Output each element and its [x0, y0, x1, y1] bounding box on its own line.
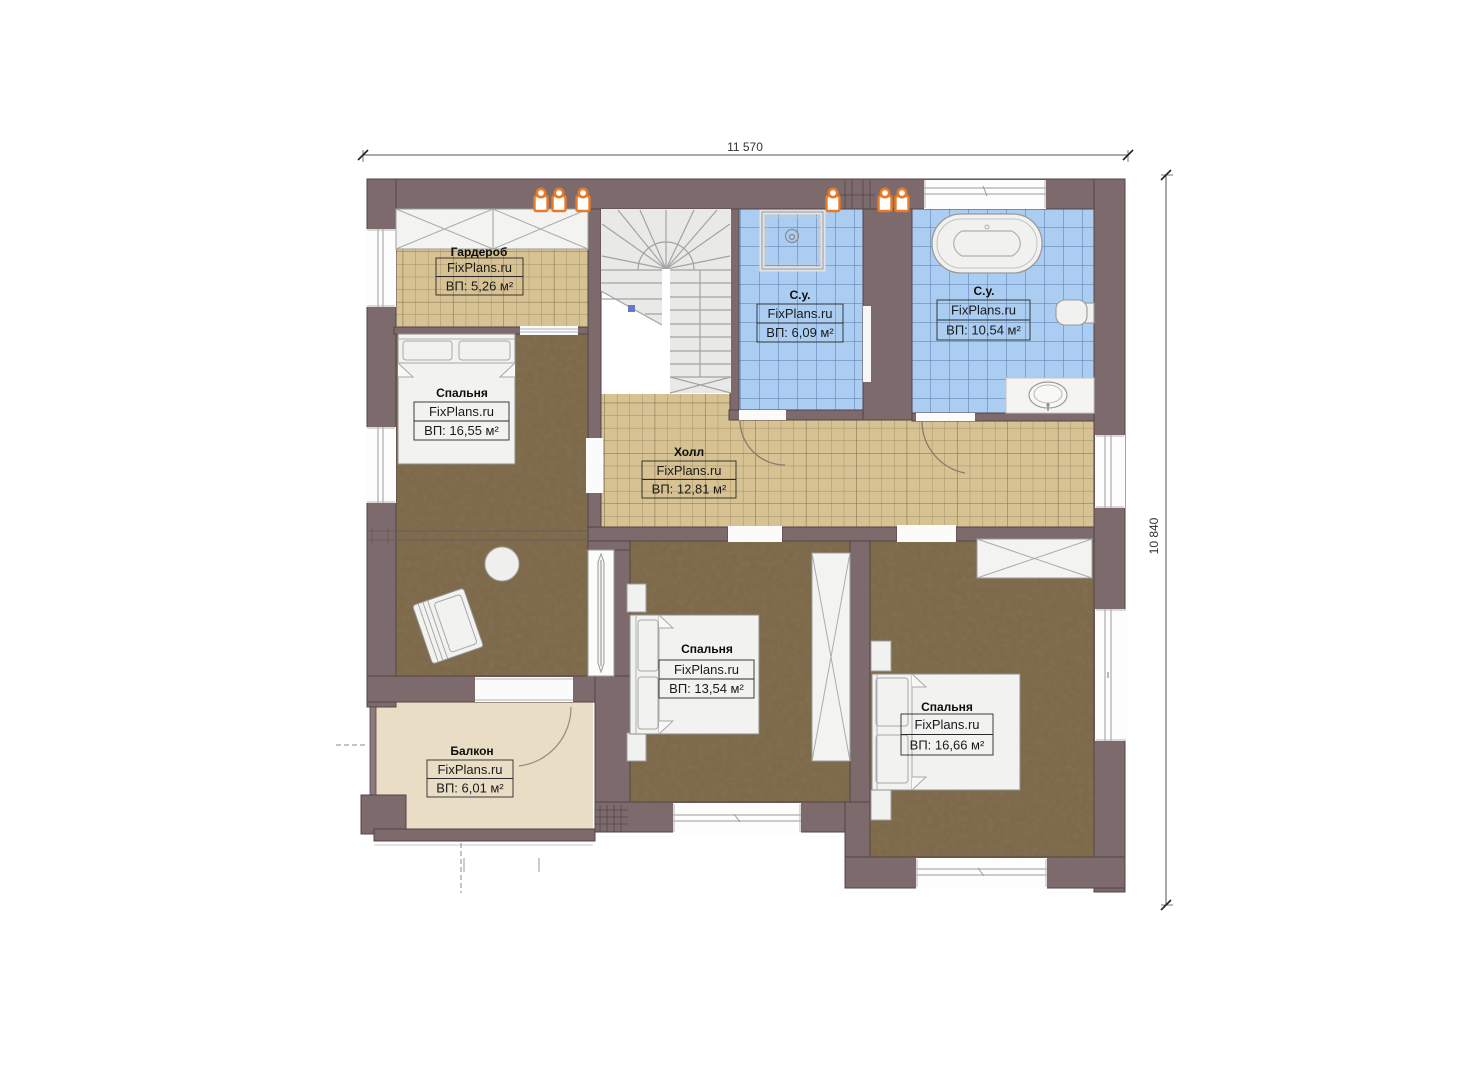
svg-text:ВП: 12,81 м²: ВП: 12,81 м² — [652, 481, 727, 496]
svg-text:Спальня: Спальня — [681, 642, 733, 656]
svg-text:FixPlans.ru: FixPlans.ru — [914, 717, 979, 732]
svg-text:Холл: Холл — [674, 445, 704, 459]
svg-text:11 570: 11 570 — [727, 140, 763, 154]
svg-text:Спальня: Спальня — [436, 386, 488, 400]
svg-text:С.у.: С.у. — [790, 288, 811, 302]
svg-text:Балкон: Балкон — [450, 744, 493, 758]
svg-text:ВП: 16,66 м²: ВП: 16,66 м² — [910, 737, 985, 752]
svg-text:ВП: 16,55 м²: ВП: 16,55 м² — [424, 423, 499, 438]
svg-text:Гардероб: Гардероб — [451, 245, 508, 259]
svg-text:ВП: 6,01 м²: ВП: 6,01 м² — [436, 780, 504, 795]
svg-text:FixPlans.ru: FixPlans.ru — [429, 404, 494, 419]
svg-text:ВП: 10,54 м²: ВП: 10,54 м² — [946, 323, 1021, 338]
svg-text:FixPlans.ru: FixPlans.ru — [656, 463, 721, 478]
svg-text:ВП: 13,54 м²: ВП: 13,54 м² — [669, 681, 744, 696]
svg-text:FixPlans.ru: FixPlans.ru — [437, 762, 502, 777]
svg-text:FixPlans.ru: FixPlans.ru — [674, 662, 739, 677]
svg-text:Спальня: Спальня — [921, 700, 973, 714]
svg-text:10 840: 10 840 — [1147, 517, 1161, 554]
svg-text:ВП: 6,09 м²: ВП: 6,09 м² — [766, 325, 834, 340]
svg-text:С.у.: С.у. — [974, 284, 995, 298]
svg-text:ВП: 5,26 м²: ВП: 5,26 м² — [446, 278, 514, 293]
svg-text:FixPlans.ru: FixPlans.ru — [951, 303, 1016, 318]
svg-text:FixPlans.ru: FixPlans.ru — [447, 260, 512, 275]
svg-text:FixPlans.ru: FixPlans.ru — [767, 306, 832, 321]
